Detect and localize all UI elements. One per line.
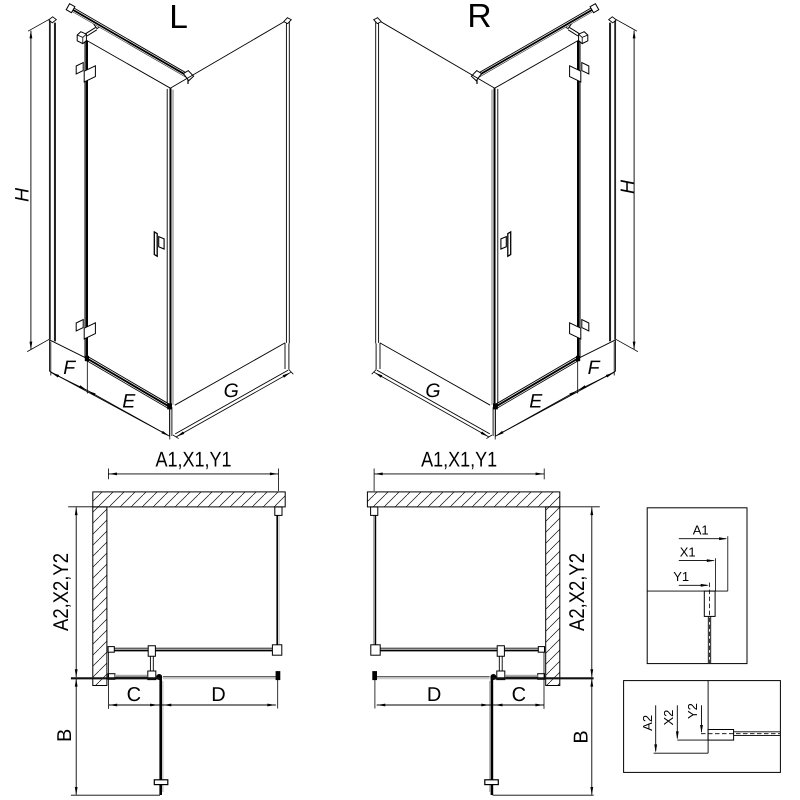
- svg-text:R: R: [467, 0, 491, 35]
- svg-text:D: D: [211, 684, 225, 706]
- svg-text:X1: X1: [680, 544, 696, 559]
- svg-text:B: B: [571, 730, 593, 743]
- svg-text:F: F: [63, 357, 76, 379]
- svg-text:H: H: [617, 179, 639, 194]
- svg-text:A2,X2,Y2: A2,X2,Y2: [49, 553, 73, 631]
- svg-text:A1,X1,Y1: A1,X1,Y1: [156, 448, 232, 472]
- svg-text:L: L: [169, 0, 188, 36]
- svg-text:E: E: [122, 390, 136, 412]
- svg-text:A1,X1,Y1: A1,X1,Y1: [421, 448, 497, 472]
- svg-text:A2,X2,Y2: A2,X2,Y2: [565, 553, 589, 631]
- svg-text:G: G: [425, 380, 440, 402]
- svg-text:E: E: [529, 390, 543, 412]
- svg-text:H: H: [12, 187, 34, 202]
- svg-text:Y1: Y1: [673, 569, 689, 584]
- svg-text:B: B: [54, 729, 76, 742]
- svg-text:X2: X2: [661, 710, 676, 726]
- svg-text:Y2: Y2: [685, 703, 700, 719]
- svg-text:C: C: [127, 684, 141, 706]
- svg-text:G: G: [224, 380, 239, 402]
- svg-text:C: C: [512, 684, 526, 706]
- svg-text:D: D: [427, 684, 441, 706]
- svg-text:A1: A1: [693, 523, 709, 538]
- svg-text:F: F: [588, 357, 601, 379]
- svg-text:A2: A2: [640, 715, 655, 731]
